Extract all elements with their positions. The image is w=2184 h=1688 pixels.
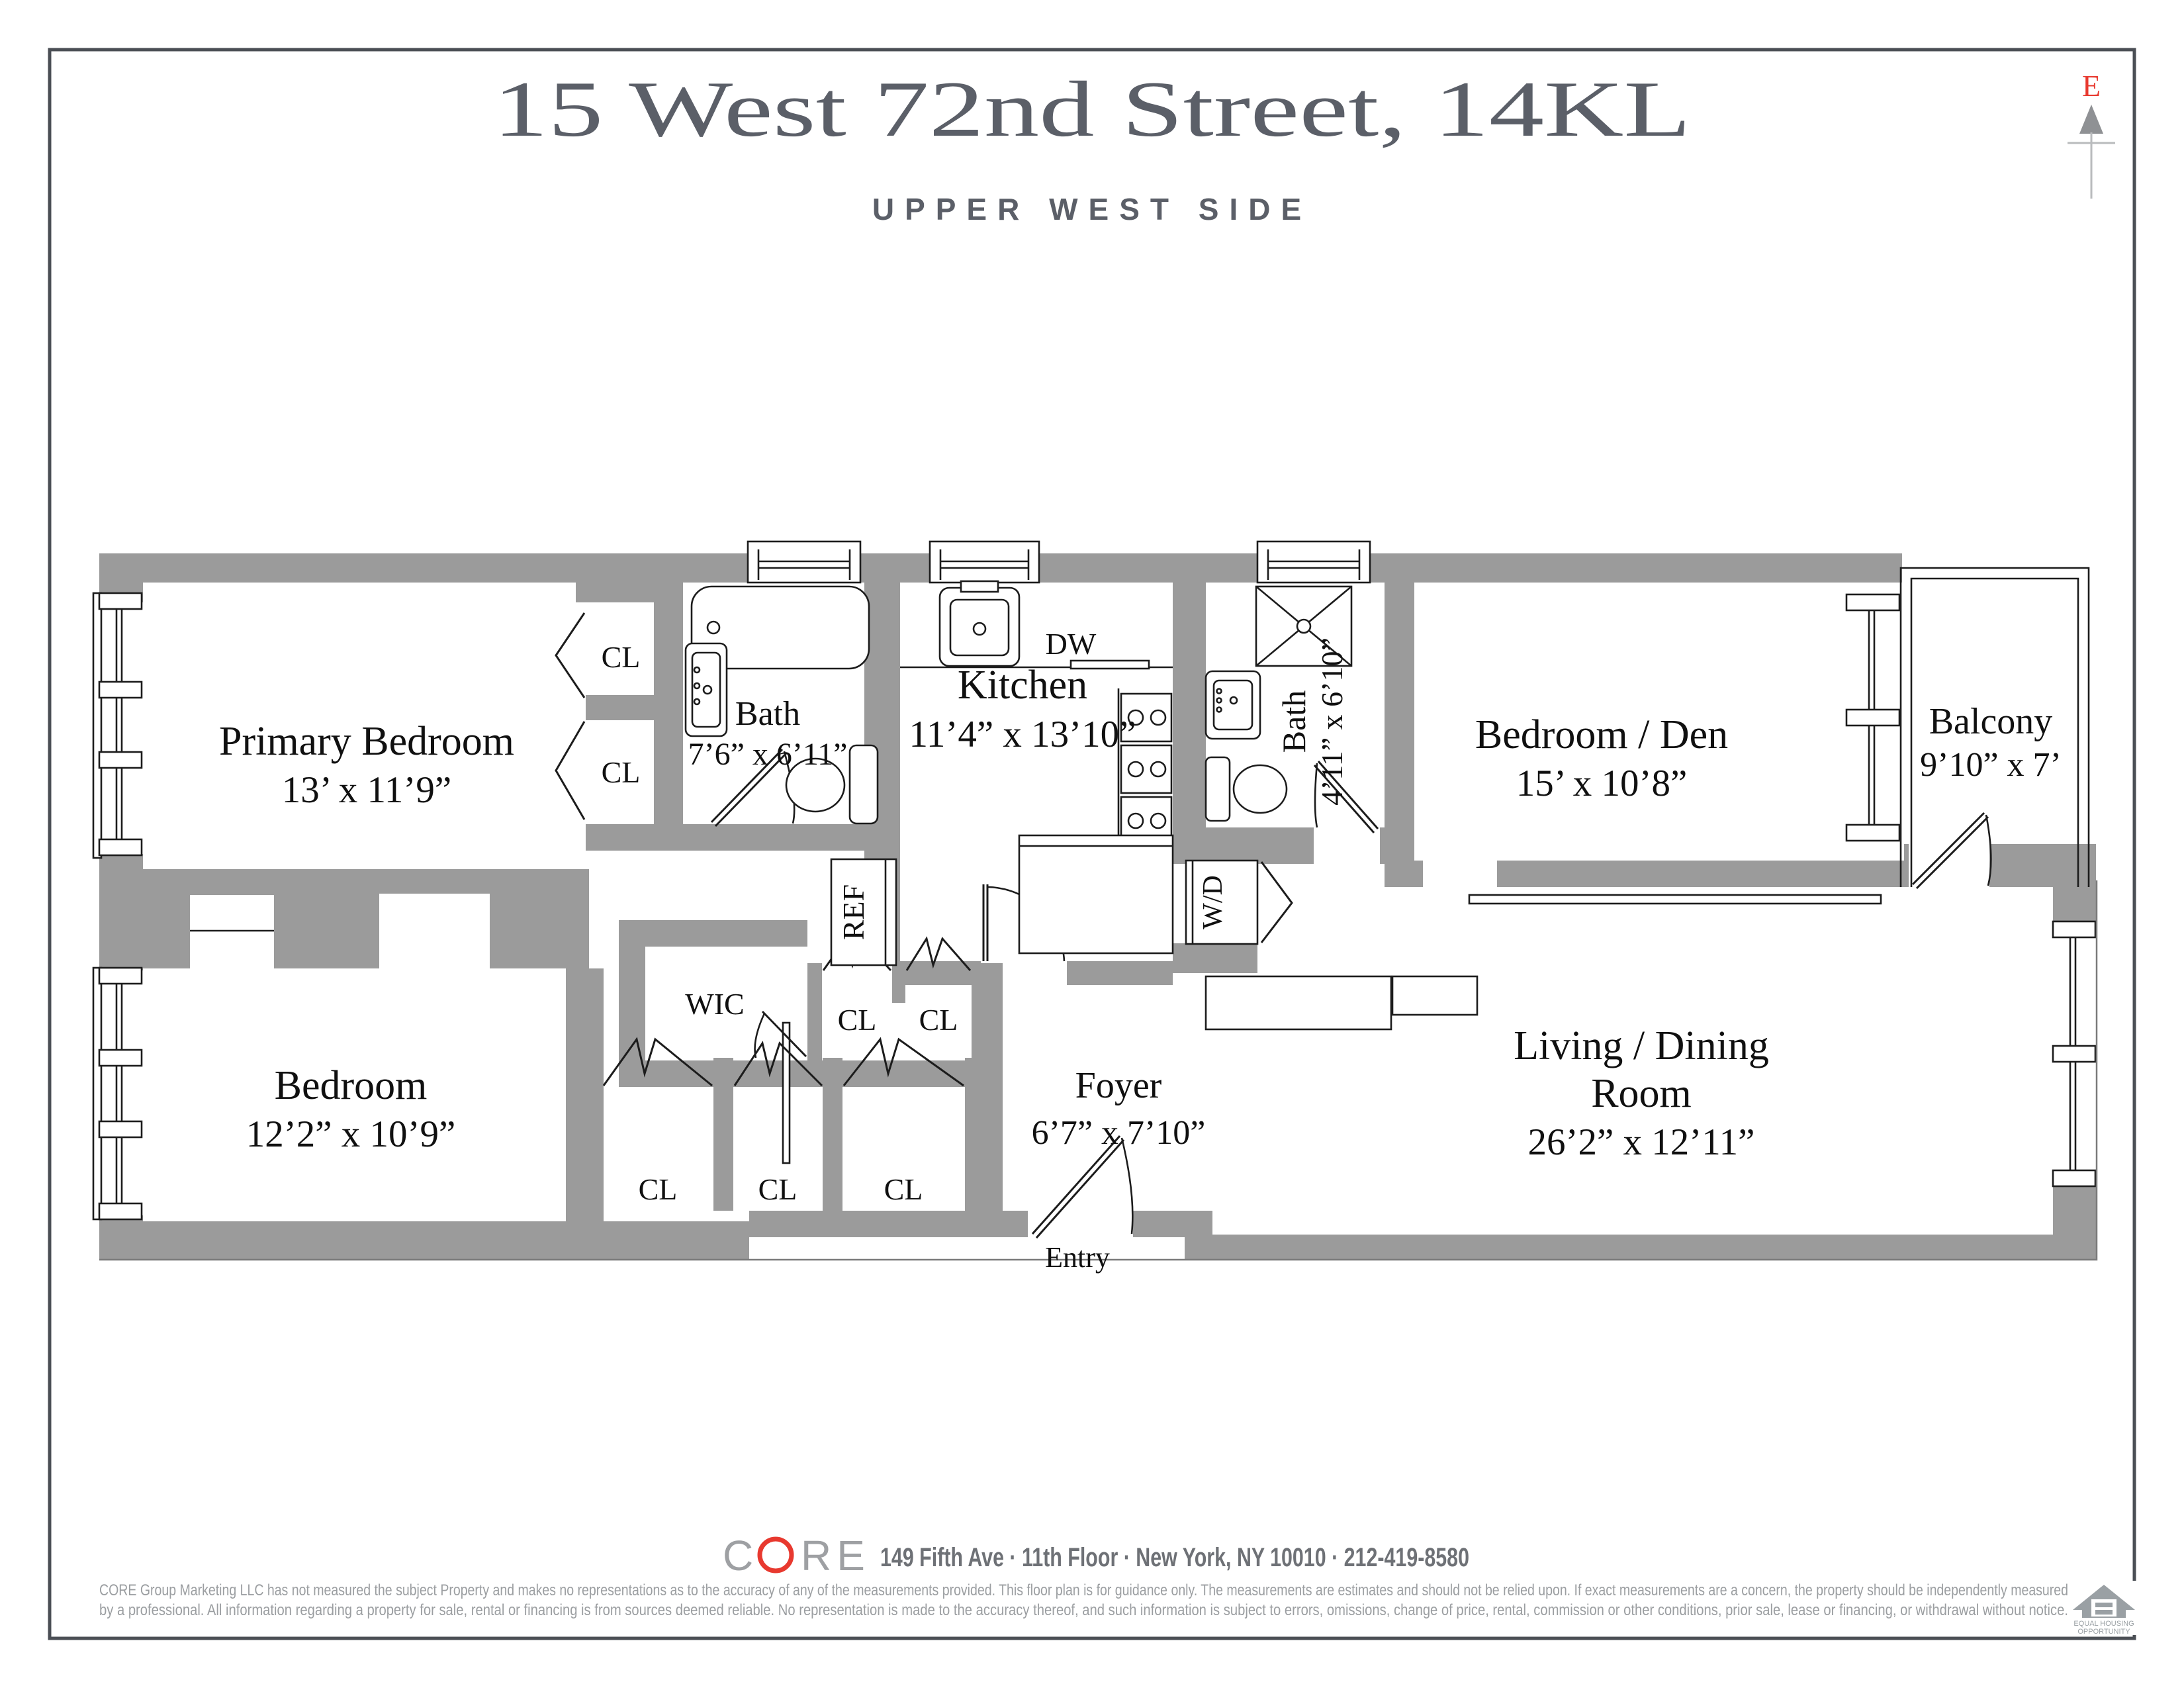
wall xyxy=(823,1058,842,1211)
room-label-bath2: Bath xyxy=(1275,690,1312,753)
wall xyxy=(1173,943,1257,973)
floor-plan-page: 15 West 72nd Street, 14KL UPPER WEST SID… xyxy=(0,0,2184,1688)
eho-equal-bar xyxy=(2095,1603,2113,1607)
room-label-primary-bedroom: Primary Bedroom xyxy=(219,719,514,764)
room-dims-primary-bedroom: 13’ x 11’9” xyxy=(282,769,451,811)
eho-text-2: OPPORTUNITY xyxy=(2077,1628,2130,1636)
closet-label: CL xyxy=(602,640,641,674)
wall xyxy=(1173,583,1206,864)
hall-door-leaf xyxy=(783,1023,790,1163)
ref-label: REF xyxy=(837,884,870,940)
window-bay xyxy=(1846,594,1899,841)
wall xyxy=(749,1211,1029,1237)
cabinet xyxy=(1206,976,1391,1029)
cabinet xyxy=(1392,976,1477,1015)
page-title: 15 West 72nd Street, 14KL xyxy=(493,65,1691,153)
wall xyxy=(1133,1211,1212,1237)
dw-label: DW xyxy=(1046,627,1097,661)
balcony-door-opening xyxy=(1909,843,1989,888)
room-label-living-dining: Living / Dining xyxy=(1514,1023,1769,1068)
closet-bifold-door xyxy=(556,722,584,820)
wall xyxy=(576,553,683,602)
wall xyxy=(965,1058,1003,1211)
closet-label: CL xyxy=(919,1003,958,1037)
bath1-sink xyxy=(686,643,727,736)
room-label-kitchen: Kitchen xyxy=(958,663,1087,708)
room-label-bedroom: Bedroom xyxy=(275,1063,428,1108)
wall xyxy=(586,824,900,851)
eho-text-1: EQUAL HOUSING xyxy=(2073,1620,2134,1628)
stove xyxy=(1118,688,1171,851)
window xyxy=(1257,541,1370,583)
room-label-bath1: Bath xyxy=(735,695,800,733)
entry-opening xyxy=(1028,1209,1133,1239)
wall xyxy=(99,1221,749,1259)
room-dims-bedroom-den: 15’ x 10’8” xyxy=(1516,763,1688,804)
wall xyxy=(807,963,822,1060)
den-doorway xyxy=(1423,859,1497,888)
window-bay xyxy=(2053,921,2095,1186)
core-logo-re: RE xyxy=(801,1532,870,1579)
kitchen-peninsula xyxy=(1019,835,1173,953)
room-dims-living-dining: 26’2” x 12’11” xyxy=(1528,1121,1755,1163)
compass-arrow-icon xyxy=(2079,105,2103,134)
room-label-balcony: Balcony xyxy=(1929,701,2053,742)
wall xyxy=(1385,583,1414,887)
wall xyxy=(566,968,604,1260)
room-label-living-dining-2: Room xyxy=(1591,1071,1692,1116)
bath2-doorway xyxy=(1314,826,1380,865)
closet-label: CL xyxy=(838,1003,877,1037)
wd-bifold-door xyxy=(1261,862,1292,943)
room-label-foyer: Foyer xyxy=(1075,1065,1162,1106)
closet-label: CL xyxy=(639,1172,678,1206)
core-logo-c: C xyxy=(723,1532,758,1579)
closet-label: CL xyxy=(758,1172,797,1206)
window xyxy=(748,541,860,583)
wall xyxy=(2053,1186,2096,1259)
wic-door xyxy=(755,1011,806,1058)
wall xyxy=(99,869,589,968)
page-subtitle: UPPER WEST SIDE xyxy=(872,192,1312,226)
footer: C RE 149 Fifth Ave · 11th Floor · New Yo… xyxy=(99,1532,2138,1636)
compass-label: E xyxy=(2082,69,2101,103)
closet-label: CL xyxy=(884,1172,923,1206)
closet-bifold-door xyxy=(556,613,584,698)
window-bay xyxy=(93,593,142,858)
room-dims-bedroom: 12’2” x 10’9” xyxy=(246,1113,456,1155)
room-label-bedroom-den: Bedroom / Den xyxy=(1475,712,1728,757)
bath2-toilet xyxy=(1206,757,1287,821)
footer-address: 149 Fifth Ave · 11th Floor · New York, N… xyxy=(880,1543,1469,1572)
room-dims-bath1: 7’6” x 6’11” xyxy=(688,737,848,772)
wall-niche xyxy=(190,895,274,968)
eho-equal-bar xyxy=(2095,1610,2113,1615)
counter xyxy=(1469,895,1881,904)
wall xyxy=(619,920,807,947)
core-logo: C RE xyxy=(723,1532,870,1579)
disclaimer-line-2: by a professional. All information regar… xyxy=(99,1601,2068,1619)
wall xyxy=(713,1058,733,1211)
wd-label: W/D xyxy=(1198,875,1228,929)
kitchen-sink xyxy=(940,581,1019,666)
equal-housing-logo: EQUAL HOUSING OPPORTUNITY xyxy=(2070,1581,2138,1636)
wall xyxy=(586,695,683,720)
wic-label: WIC xyxy=(685,987,744,1021)
fixtures xyxy=(686,581,1881,1029)
room-dims-foyer: 6’7” x 7’10” xyxy=(1032,1114,1206,1152)
room-dims-bath2: 4’11” x 6’10” xyxy=(1315,637,1349,806)
wall xyxy=(900,961,981,985)
wall xyxy=(1067,961,1173,985)
core-logo-o-icon xyxy=(760,1539,792,1571)
entry-label: Entry xyxy=(1045,1241,1110,1274)
window-bay xyxy=(93,968,142,1219)
bath2-sink xyxy=(1206,671,1260,739)
wall-niche xyxy=(379,894,490,968)
closet-label: CL xyxy=(602,755,641,789)
wall xyxy=(1185,1235,2096,1259)
compass: E xyxy=(2068,69,2115,199)
disclaimer-line-1: CORE Group Marketing LLC has not measure… xyxy=(99,1581,2068,1599)
room-dims-balcony: 9’10” x 7’ xyxy=(1920,746,2062,784)
room-dims-kitchen: 11’4” x 13’10” xyxy=(909,714,1136,755)
window xyxy=(930,541,1039,583)
